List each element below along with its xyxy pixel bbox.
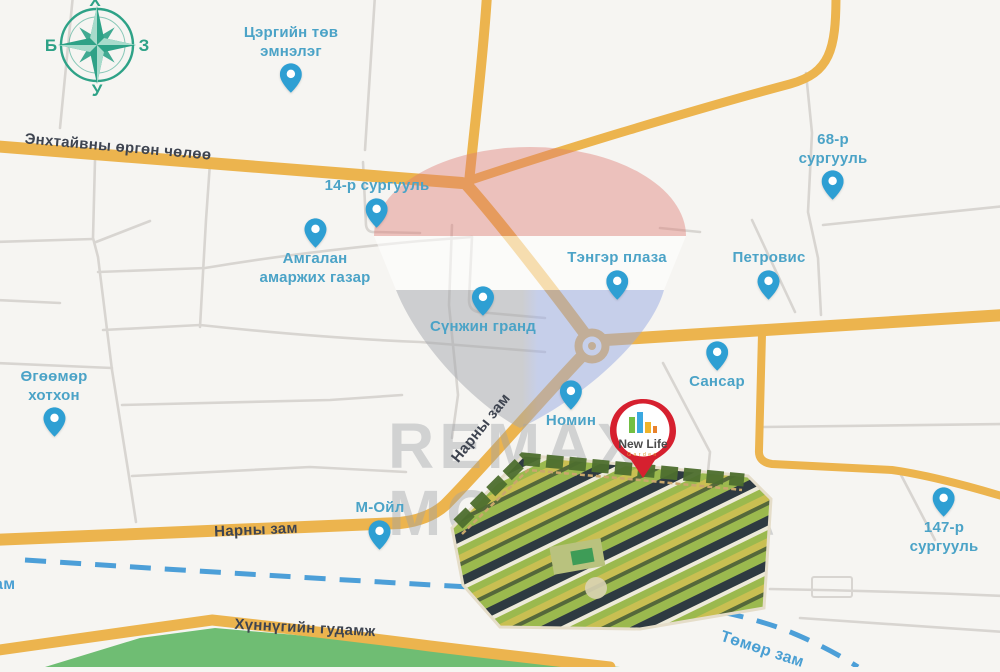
poi-tenger-plaza: Тэнгэр плаза <box>567 249 666 300</box>
project-name-text: New Life <box>618 437 668 451</box>
compass-south-label: У <box>92 81 103 100</box>
compass-rose-icon: Х Б З У <box>38 0 158 102</box>
poi-school-147: 147-р сургууль <box>910 487 979 556</box>
map-pin-icon[interactable] <box>304 218 326 248</box>
road-label-zam-edge: зам <box>0 576 15 594</box>
poi-nomin: Номин <box>546 380 596 431</box>
map-pin-icon[interactable] <box>606 270 628 300</box>
poi-petrovis: Петровис <box>733 249 806 300</box>
poi-ogoomor-khotkhon: Өгөөмөр хотхон <box>20 368 87 437</box>
poi-sansar: Сансар <box>689 341 745 392</box>
map-pin-icon[interactable] <box>43 407 65 437</box>
map-pin-icon[interactable] <box>706 341 728 371</box>
map-pin-icon[interactable] <box>369 520 391 550</box>
poi-sunjin-grand: Сүнжин гранд <box>430 286 536 337</box>
map-pin-icon[interactable] <box>472 286 494 316</box>
poi-m-oil: М-Ойл <box>356 499 405 550</box>
poi-school-68: 68-р сургууль <box>799 131 868 200</box>
poi-military-hospital: Цэргийн төв эмнэлэг <box>244 24 338 93</box>
compass-west-label: Б <box>45 36 57 55</box>
new-life-garden-pin[interactable]: New Life Garden <box>605 396 681 480</box>
map-pin-icon[interactable] <box>758 270 780 300</box>
compass-east-label: З <box>139 36 150 55</box>
poi-amgalan-maternity: Амгалан амаржих газар <box>259 218 370 287</box>
compass-north-label: Х <box>89 0 101 10</box>
map-pin-icon[interactable] <box>280 63 302 93</box>
map-pin-icon[interactable] <box>933 487 955 517</box>
map-pin-icon[interactable] <box>560 380 582 410</box>
map-pin-icon[interactable] <box>822 170 844 200</box>
project-subtitle-text: Garden <box>627 452 659 458</box>
